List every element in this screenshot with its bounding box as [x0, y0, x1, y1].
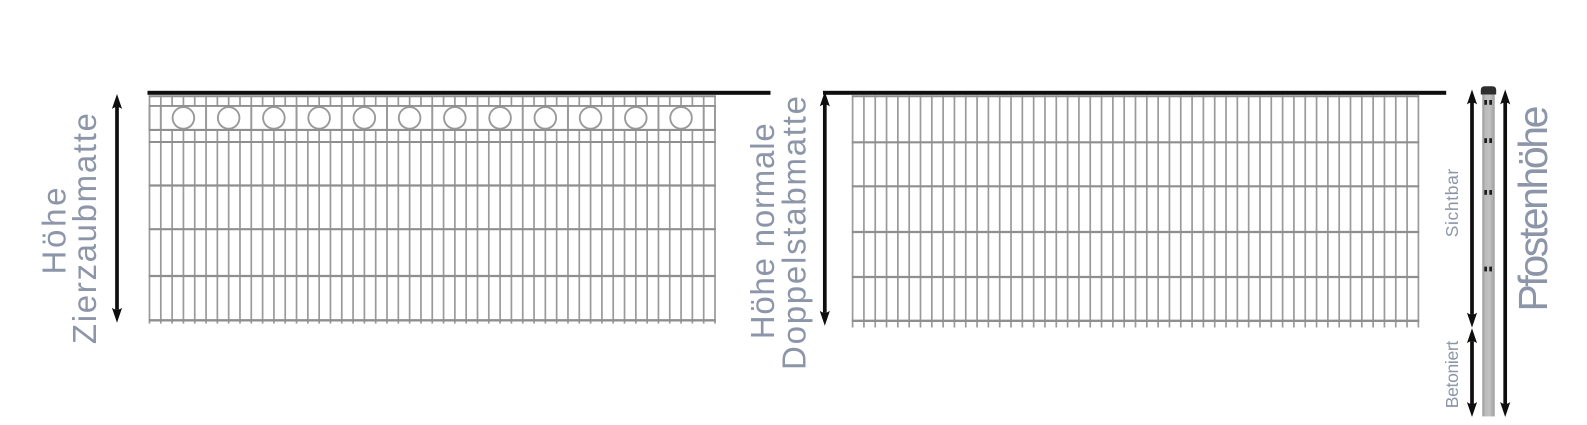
svg-text:Betoniert: Betoniert: [1442, 341, 1462, 409]
svg-text:Sichtbar: Sichtbar: [1442, 169, 1462, 238]
svg-text:Pfostenhöhe: Pfostenhöhe: [1510, 106, 1556, 312]
svg-text:Doppelstabmatte: Doppelstabmatte: [776, 96, 813, 370]
svg-text:Zierzaubmatte: Zierzaubmatte: [66, 113, 103, 344]
